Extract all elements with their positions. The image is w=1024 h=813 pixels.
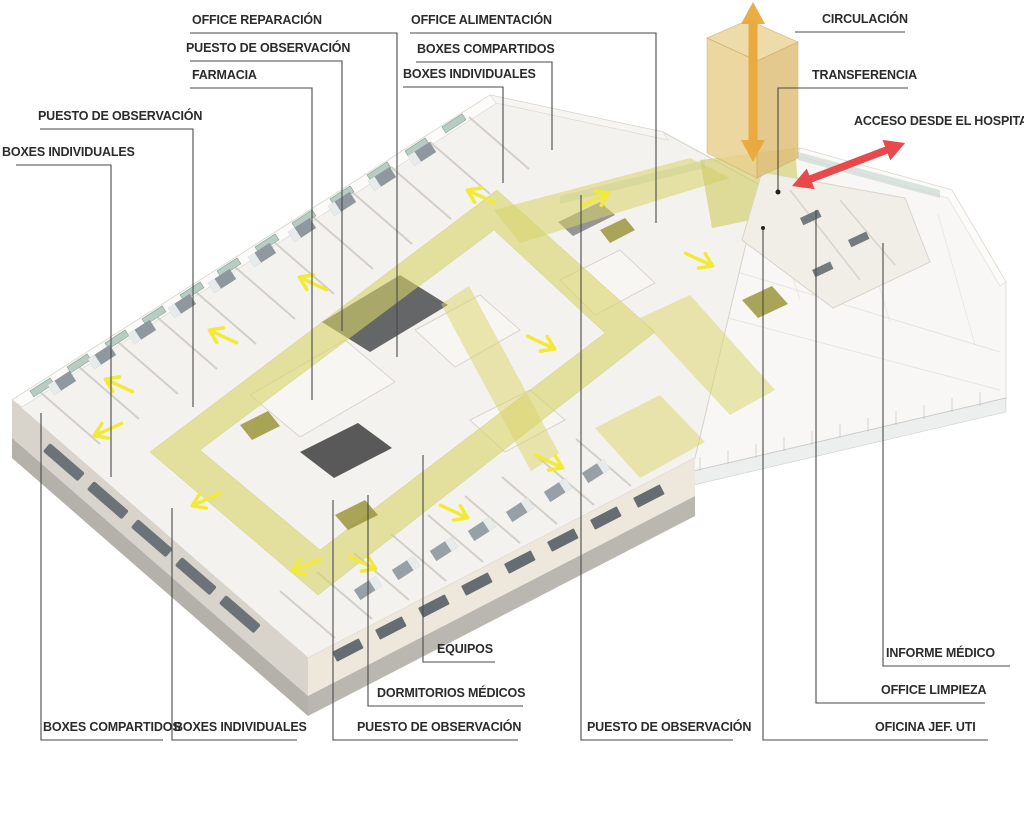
label-oficina-jef-uti: OFICINA JEF. UTI	[875, 721, 976, 734]
label-informe-medico: INFORME MÉDICO	[886, 647, 995, 660]
label-acceso-desde-el-hospital: ACCESO DESDE EL HOSPITAL	[854, 115, 1024, 128]
label-circulacion: CIRCULACIÓN	[822, 13, 908, 26]
label-puesto-observacion-top: PUESTO DE OBSERVACIÓN	[186, 42, 350, 55]
label-boxes-individuales-bottom: BOXES INDIVIDUALES	[174, 721, 307, 734]
label-dormitorios-medicos: DORMITORIOS MÉDICOS	[377, 687, 525, 700]
label-office-limpieza: OFFICE LIMPIEZA	[881, 684, 986, 697]
label-puesto-observacion-bottom-right: PUESTO DE OBSERVACIÓN	[587, 721, 751, 734]
label-puesto-observacion-left: PUESTO DE OBSERVACIÓN	[38, 110, 202, 123]
label-transferencia: TRANSFERENCIA	[812, 69, 917, 82]
label-boxes-individuales-top: BOXES INDIVIDUALES	[403, 68, 536, 81]
label-office-reparacion: OFFICE REPARACIÓN	[192, 14, 322, 27]
label-office-alimentacion: OFFICE ALIMENTACIÓN	[411, 14, 552, 27]
diagram-canvas: OFFICE REPARACIÓN PUESTO DE OBSERVACIÓN …	[0, 0, 1024, 813]
label-puesto-observacion-bottom-left: PUESTO DE OBSERVACIÓN	[357, 721, 521, 734]
label-boxes-compartidos-top: BOXES COMPARTIDOS	[417, 43, 555, 56]
label-boxes-individuales-left: BOXES INDIVIDUALES	[2, 146, 135, 159]
label-equipos: EQUIPOS	[437, 643, 493, 656]
label-boxes-compartidos-bottom: BOXES COMPARTIDOS	[43, 721, 181, 734]
label-farmacia: FARMACIA	[192, 69, 257, 82]
